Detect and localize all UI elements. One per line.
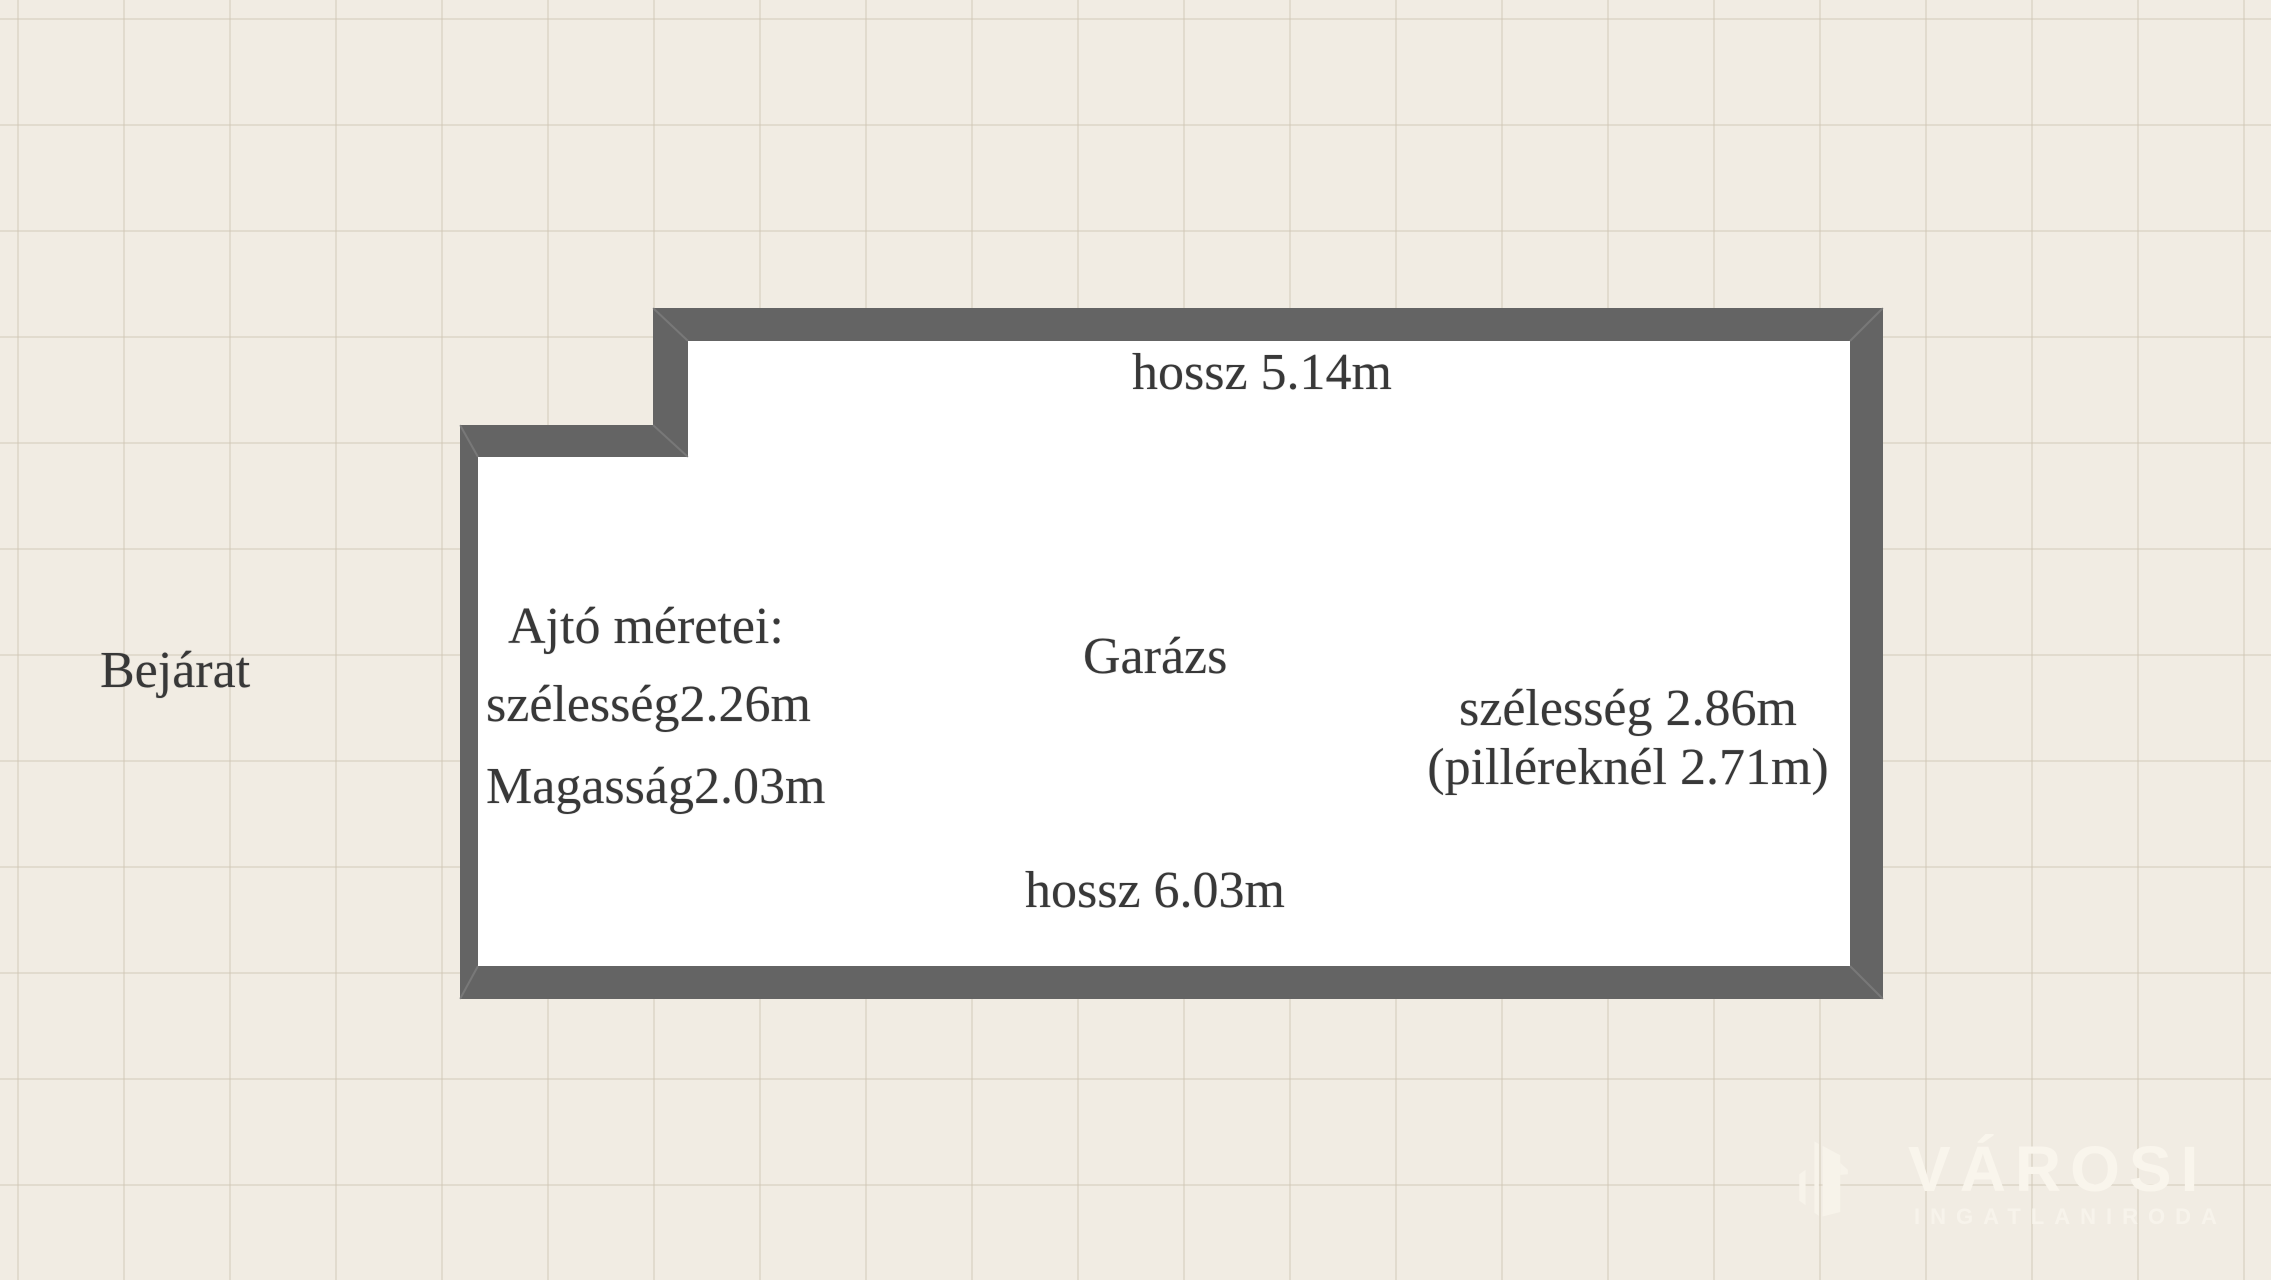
door-height-label: Magasság2.03m [486,758,825,815]
top-length-label: hossz 5.14m [1062,344,1462,401]
buildings-icon [1798,1114,1880,1242]
entrance-label: Bejárat [100,642,250,699]
watermark-subtitle-text: INGATLANIRODA [1914,1204,2227,1230]
door-dimensions-title: Ajtó méretei: [508,598,784,655]
bottom-length-label: hossz 6.03m [1025,862,1285,919]
watermark-brand-text: VÁROSI [1908,1132,2207,1206]
floorplan-canvas: hossz 5.14m Bejárat Ajtó méretei: széles… [0,0,2271,1280]
room-name-label: Garázs [1083,628,1227,685]
right-width-line1: szélesség 2.86m [1398,680,1858,739]
right-width-label: szélesség 2.86m (pilléreknél 2.71m) [1398,680,1858,798]
right-width-line2: (pilléreknél 2.71m) [1398,739,1858,798]
agency-watermark: VÁROSI INGATLANIRODA [1796,1108,2236,1248]
door-width-label: szélesség2.26m [486,676,811,733]
